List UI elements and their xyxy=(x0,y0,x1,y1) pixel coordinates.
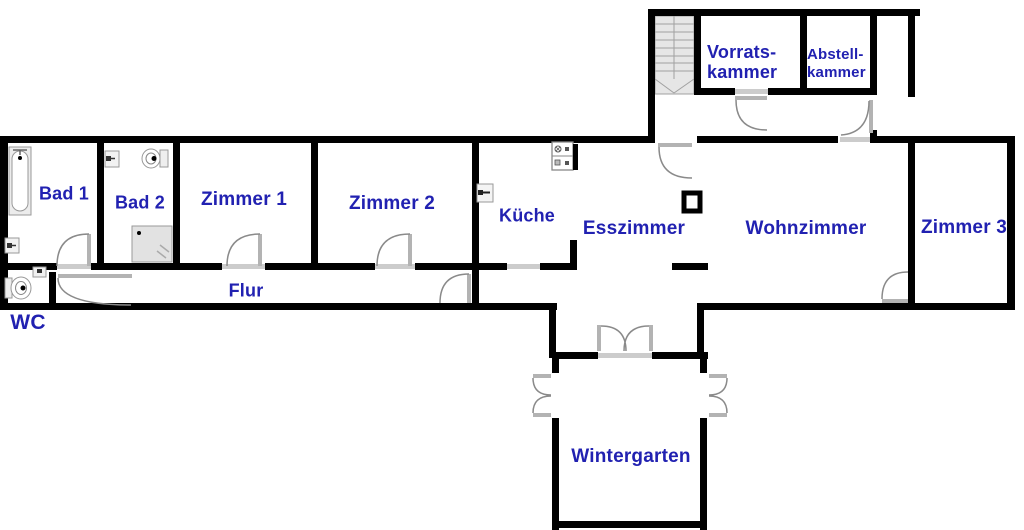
sink-icon xyxy=(5,238,19,253)
room-label-esszimmer: Esszimmer xyxy=(583,218,685,240)
room-label-bad2: Bad 2 xyxy=(115,193,165,214)
toilet-icon xyxy=(142,149,168,168)
room-label-wintergarten: Wintergarten xyxy=(571,446,690,468)
room-label-abstellkammer-line2: kammer xyxy=(807,64,866,82)
room-label-zimmer3: Zimmer 3 xyxy=(921,217,1007,239)
room-label-vorratskammer-line2: kammer xyxy=(707,62,777,82)
room-label-kueche: Küche xyxy=(499,206,555,227)
room-label-wohnzimmer: Wohnzimmer xyxy=(746,218,867,240)
room-label-abstellkammer: Abstell- kammer xyxy=(807,46,866,82)
sink-icon xyxy=(33,267,46,277)
sink-icon xyxy=(477,184,493,202)
door-leaves xyxy=(58,98,908,415)
room-label-zimmer1: Zimmer 1 xyxy=(201,189,287,211)
room-label-vorratskammer: Vorrats- kammer xyxy=(707,42,777,82)
stove-icon xyxy=(552,142,578,170)
floor-plan-geometry xyxy=(0,0,1024,530)
floor-plan: Bad 1 Bad 2 Zimmer 1 Zimmer 2 Küche Essz… xyxy=(0,0,1024,530)
chimney-icon xyxy=(684,193,700,211)
sink-icon xyxy=(105,151,119,167)
room-label-vorratskammer-line1: Vorrats- xyxy=(707,42,777,62)
shower-icon xyxy=(132,226,172,262)
room-label-bad1: Bad 1 xyxy=(39,184,89,205)
toilet-icon xyxy=(5,277,31,299)
room-label-flur: Flur xyxy=(229,281,264,302)
room-label-wc: WC xyxy=(10,311,45,335)
walls xyxy=(0,9,1015,530)
bathtub-icon xyxy=(9,147,31,215)
room-label-abstellkammer-line1: Abstell- xyxy=(807,46,866,64)
door-arcs xyxy=(57,100,908,413)
room-label-zimmer2: Zimmer 2 xyxy=(349,193,435,215)
staircase-icon xyxy=(655,16,694,94)
